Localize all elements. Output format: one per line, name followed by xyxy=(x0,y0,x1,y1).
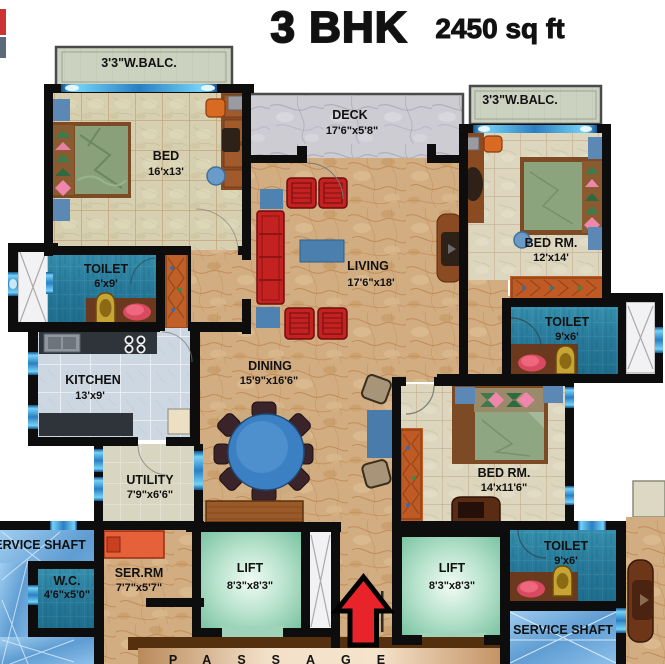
svg-text:15'9"x16'6": 15'9"x16'6" xyxy=(240,375,299,387)
svg-text:14'x11'6": 14'x11'6" xyxy=(481,482,528,494)
svg-text:17'6"x18': 17'6"x18' xyxy=(347,277,395,289)
svg-text:7'9"x6'6": 7'9"x6'6" xyxy=(127,489,173,501)
svg-text:LIVING: LIVING xyxy=(347,259,389,273)
svg-text:BED RM.: BED RM. xyxy=(525,236,578,250)
svg-text:3 BHK: 3 BHK xyxy=(270,3,407,52)
svg-text:6'x9': 6'x9' xyxy=(94,278,118,290)
svg-text:8'3"x8'3": 8'3"x8'3" xyxy=(429,580,475,592)
svg-text:2450 sq ft: 2450 sq ft xyxy=(435,13,564,44)
svg-text:DINING: DINING xyxy=(248,359,292,373)
svg-text:7'7"x5'7": 7'7"x5'7" xyxy=(116,582,162,594)
svg-text:DECK: DECK xyxy=(332,108,367,122)
svg-text:SERVICE SHAFT: SERVICE SHAFT xyxy=(513,623,613,637)
svg-text:LIFT: LIFT xyxy=(439,561,466,575)
svg-text:3'3"W.BALC.: 3'3"W.BALC. xyxy=(482,93,558,107)
svg-text:TOILET: TOILET xyxy=(84,262,129,276)
svg-text:KITCHEN: KITCHEN xyxy=(65,373,121,387)
svg-text:17'6"x5'8": 17'6"x5'8" xyxy=(326,125,378,137)
svg-text:SER.RM: SER.RM xyxy=(115,566,164,580)
svg-text:BED RM.: BED RM. xyxy=(478,466,531,480)
svg-text:8'3"x8'3": 8'3"x8'3" xyxy=(227,580,273,592)
svg-text:BED: BED xyxy=(153,149,179,163)
svg-text:3'3"W.BALC.: 3'3"W.BALC. xyxy=(101,56,177,70)
svg-text:4'6"x5'0": 4'6"x5'0" xyxy=(44,589,90,601)
svg-text:12'x14': 12'x14' xyxy=(533,252,569,264)
svg-text:TOILET: TOILET xyxy=(545,315,590,329)
svg-text:PASSAGE: PASSAGE xyxy=(169,653,411,664)
svg-text:9'x6': 9'x6' xyxy=(554,555,578,567)
svg-text:W.C.: W.C. xyxy=(53,574,80,588)
svg-text:TOILET: TOILET xyxy=(544,539,589,553)
svg-text:ERVICE SHAFT: ERVICE SHAFT xyxy=(0,538,86,552)
svg-text:13'x9': 13'x9' xyxy=(75,390,105,402)
svg-text:16'x13': 16'x13' xyxy=(148,166,184,178)
svg-text:9'x6': 9'x6' xyxy=(555,331,579,343)
svg-text:LIFT: LIFT xyxy=(237,561,264,575)
